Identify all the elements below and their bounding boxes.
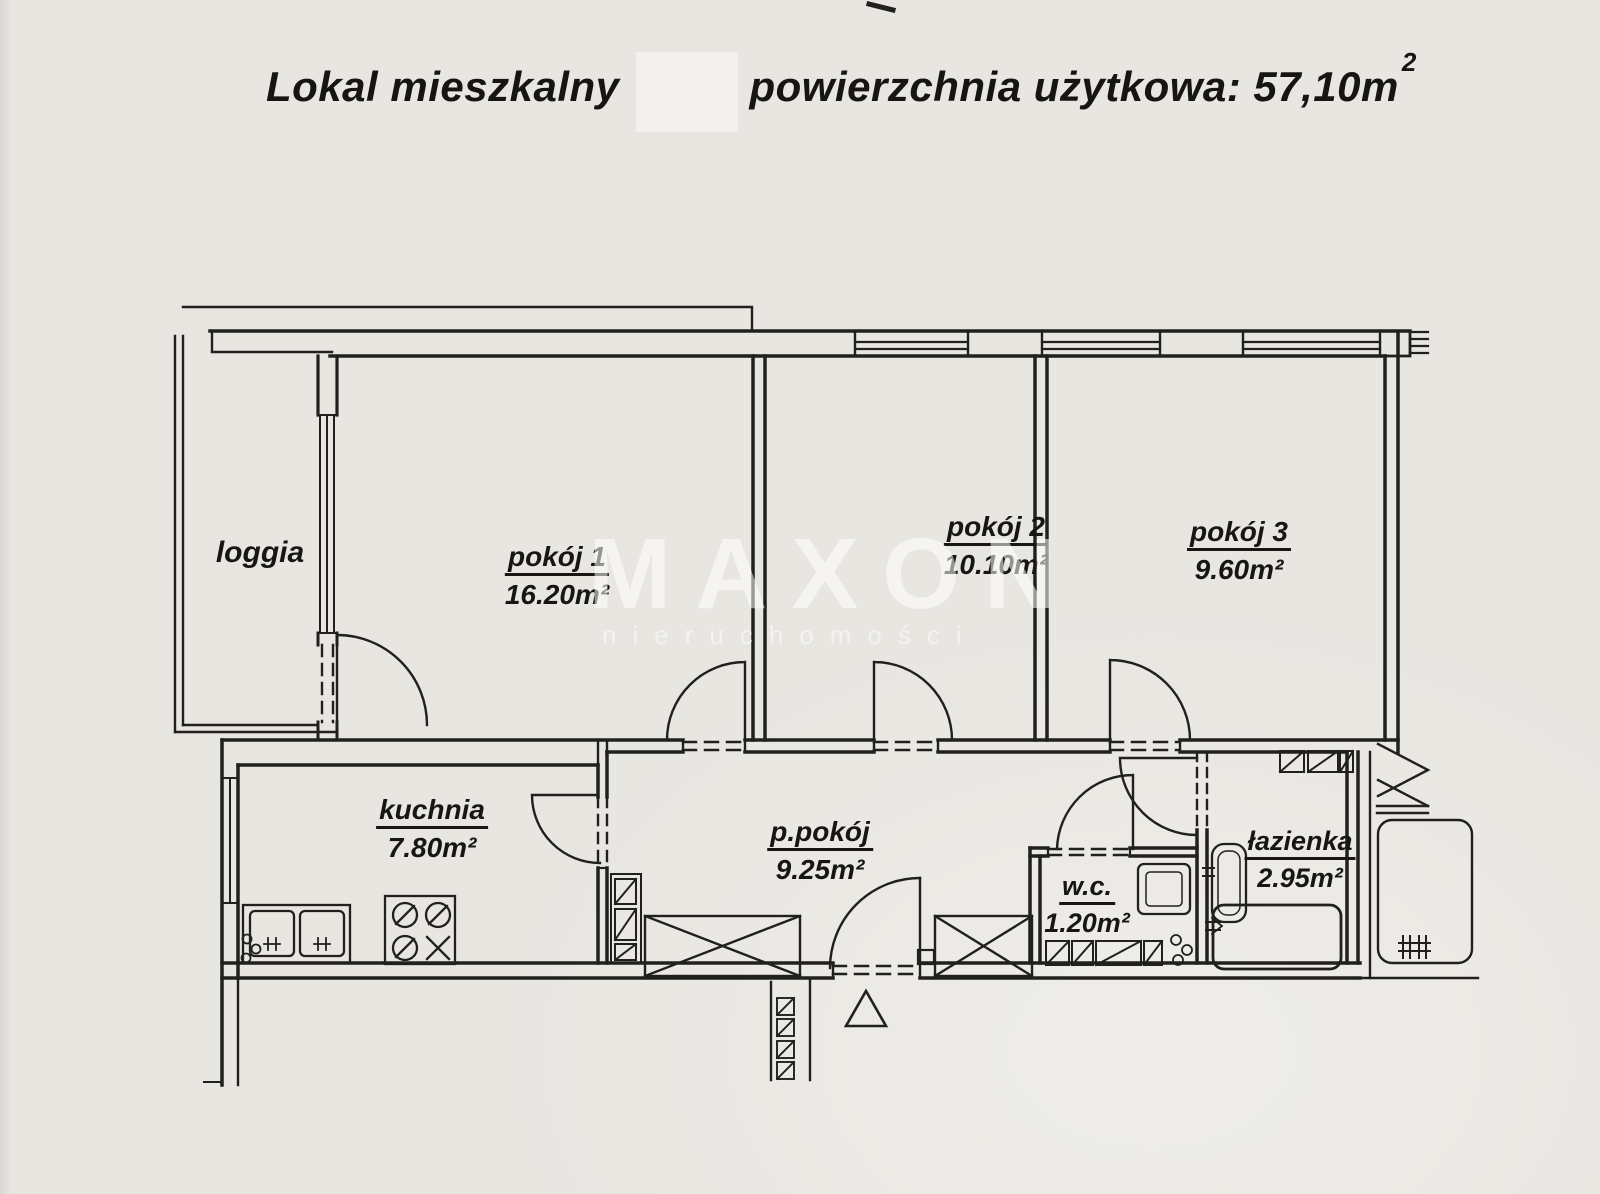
room-label-p-pokoj: p.pokój 9.25m² <box>767 816 873 886</box>
title-superscript: 2 <box>1402 48 1417 77</box>
scan-artifact <box>869 4 893 10</box>
room-label-pokoj-2: pokój 2 10.10m² <box>944 511 1048 581</box>
room-label-lazienka: łazienka 2.95m² <box>1244 826 1355 893</box>
neighbor-structures <box>1360 744 1478 978</box>
utility-shaft <box>771 978 810 1080</box>
title-suffix: powierzchnia użytkowa: 57,10m <box>750 64 1399 110</box>
wc-cabinet-icon <box>1046 935 1192 965</box>
redaction-box <box>636 52 738 132</box>
room-label-pokoj-3: pokój 3 9.60m² <box>1187 516 1291 586</box>
entrance-door <box>830 878 934 968</box>
page-title: Lokal mieszkalny powierzchnia użytkowa: … <box>266 64 1417 132</box>
stove-icon <box>385 896 455 964</box>
room-label-loggia: loggia <box>213 536 307 571</box>
bathroom-cabinet-icon <box>1280 751 1353 772</box>
kitchen-sink-icon <box>242 905 351 963</box>
washbasin-icon <box>1203 844 1246 922</box>
balcony-door <box>337 635 427 725</box>
radiator-icon <box>1399 936 1430 958</box>
hall-cabinet-icon <box>611 874 641 963</box>
door-openings <box>683 742 1180 974</box>
toilet-icon <box>1138 864 1190 914</box>
room-label-kuchnia: kuchnia 7.80m² <box>376 794 488 864</box>
floor-plan-scan: Lokal mieszkalny powierzchnia użytkowa: … <box>0 0 1600 1194</box>
title-prefix: Lokal mieszkalny <box>266 64 620 110</box>
floor-plan-drawing <box>0 0 1600 1194</box>
room-label-pokoj-1: pokój 1 16.20m² <box>505 541 609 611</box>
room-label-wc: w.c. 1.20m² <box>1044 871 1130 938</box>
entrance-triangle-icon <box>846 991 886 1026</box>
